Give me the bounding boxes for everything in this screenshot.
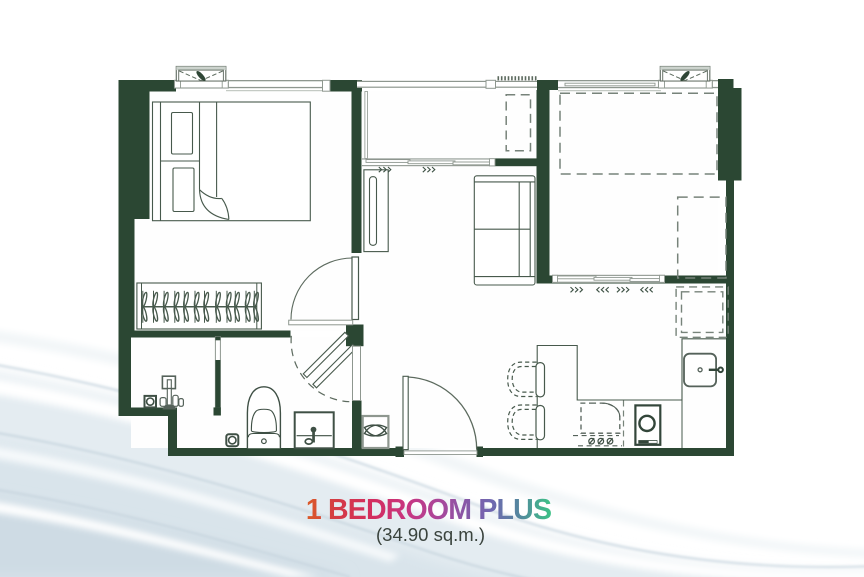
svg-text:1 BEDROOM PLUS: 1 BEDROOM PLUS bbox=[306, 494, 551, 526]
svg-text:(34.90 sq.m.): (34.90 sq.m.) bbox=[376, 524, 485, 545]
